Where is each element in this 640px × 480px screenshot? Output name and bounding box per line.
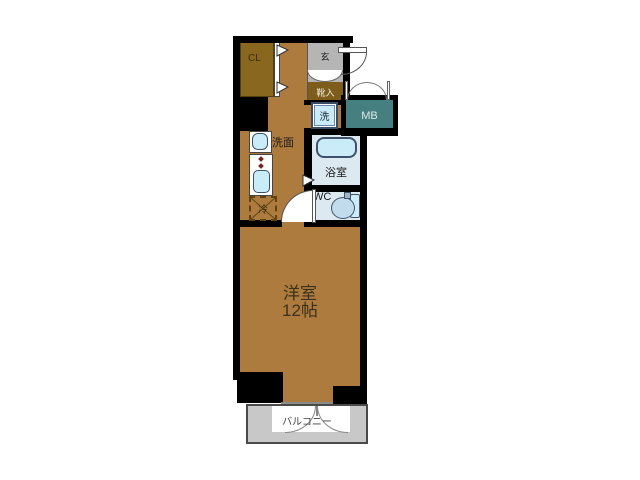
wall-above-bath	[304, 128, 398, 135]
closet-door-arrow-top-icon	[276, 44, 289, 57]
entrance-door-arc	[341, 52, 367, 75]
main-room-door-leaf	[312, 189, 316, 223]
closet-label: CL	[248, 53, 260, 64]
meter-box-inner: MB	[346, 100, 393, 131]
meterbox-door-leaf-right	[387, 81, 390, 100]
closet-door-arrow-bottom-icon	[276, 81, 289, 94]
closet-area	[240, 40, 274, 97]
refrigerator-label: 冷	[258, 201, 268, 216]
washstand-label: 洗面	[272, 134, 294, 150]
kitchen-sink-icon	[253, 170, 270, 193]
meterbox-door-arc-left	[347, 82, 367, 100]
meterbox-door-arc-right	[367, 82, 387, 100]
toilet-handle-icon	[344, 192, 351, 199]
wall-pillar-under-closet	[233, 97, 268, 131]
wall-room-top-right	[312, 220, 367, 227]
wall-room-top-left	[233, 220, 282, 227]
main-room-name: 洋室	[283, 285, 317, 302]
floor-plan: CL 玄 靴入 MB 洗 洗面	[0, 0, 640, 480]
meter-box-label: MB	[361, 110, 378, 122]
main-room-label: 洋室 12帖	[240, 285, 360, 319]
wall-pillar-bottom-left	[237, 372, 283, 403]
toilet-bowl-icon	[331, 197, 355, 219]
refrigerator-space: 冷	[249, 196, 277, 221]
balcony-door-opening	[281, 402, 333, 404]
bathroom-door-arrow-icon	[302, 174, 315, 187]
bathtub-icon	[316, 137, 357, 158]
wall-left	[233, 36, 240, 380]
main-room-size: 12帖	[282, 302, 318, 319]
washer-space: 洗	[311, 102, 338, 129]
wall-right	[360, 128, 367, 390]
shoebox-label: 靴入	[316, 86, 334, 99]
washer-inner: 洗	[314, 105, 335, 126]
washer-label: 洗	[320, 108, 330, 123]
washstand-sink-icon	[252, 133, 268, 150]
shoebox-area: 靴入	[307, 82, 343, 102]
balcony-label: バルコニー	[246, 413, 368, 428]
wall-top	[233, 36, 353, 43]
bathroom-label: 浴室	[312, 164, 360, 180]
meterbox-door-leaf-left	[345, 81, 348, 100]
